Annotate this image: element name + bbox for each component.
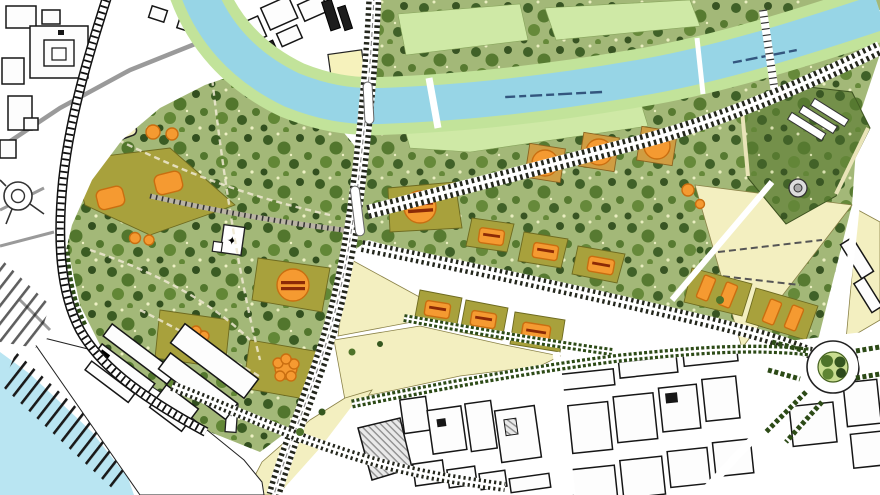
- city-block: [570, 465, 618, 495]
- roundabout-small: [789, 179, 807, 197]
- orange-pavilion: [146, 125, 160, 139]
- orange-pavilion: [144, 235, 154, 245]
- orange-pavilion: [696, 200, 705, 209]
- city-block: [789, 402, 837, 446]
- city-block: [620, 456, 666, 495]
- roundabout-island: [818, 352, 848, 382]
- city-block: [427, 406, 467, 454]
- city-block: [568, 402, 613, 454]
- city-block: [667, 447, 711, 487]
- city-block: [400, 396, 430, 433]
- city-block: [658, 384, 700, 432]
- city-block: [465, 400, 497, 451]
- median-island: [363, 82, 374, 124]
- urban-masterplan-map: ✦ ✦: [0, 0, 880, 495]
- stadium-oval-west: [277, 269, 309, 301]
- road-east-stub: [859, 360, 880, 364]
- orange-pavilion: [130, 233, 141, 244]
- city-block: [613, 393, 658, 443]
- city-block: [850, 431, 880, 469]
- orange-pavilion: [166, 128, 178, 140]
- city-block: [702, 376, 740, 421]
- orange-pavilion: [682, 184, 694, 196]
